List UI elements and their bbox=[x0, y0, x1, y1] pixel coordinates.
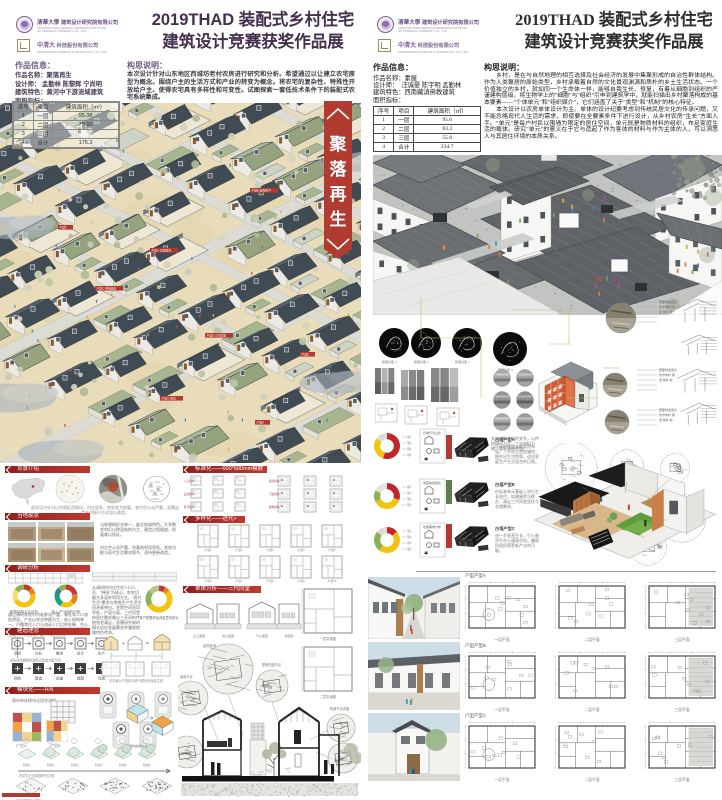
svg-text:家庭构成变化: 家庭构成变化 bbox=[423, 480, 441, 485]
svg-text:防水卷材 保: 防水卷材 保 bbox=[659, 372, 675, 377]
svg-text:项4: 项4 bbox=[407, 547, 412, 551]
svg-text:户型B·庭院生产: 户型B·庭院生产 bbox=[252, 189, 272, 193]
svg-text:户型F: 户型F bbox=[60, 226, 68, 230]
svg-text:功能需求分布: 功能需求分布 bbox=[423, 524, 441, 529]
svg-text:项4: 项4 bbox=[407, 503, 412, 507]
svg-text:日常行为占比: 日常行为占比 bbox=[423, 430, 441, 435]
svg-text:户型8: 户型8 bbox=[266, 579, 274, 583]
svg-text:需求: 需求 bbox=[56, 651, 64, 656]
svg-text:户型5: 户型5 bbox=[328, 548, 336, 552]
svg-text:户型E: 户型E bbox=[302, 353, 310, 357]
svg-text:侧立面图: 侧立面图 bbox=[222, 633, 234, 638]
svg-text:层 椽条 檩: 层 椽条 檩 bbox=[659, 377, 673, 382]
svg-text:防水卷材 保: 防水卷材 保 bbox=[659, 304, 675, 309]
svg-text:户型1: 户型1 bbox=[204, 548, 212, 552]
svg-text:项3: 项3 bbox=[407, 497, 412, 501]
svg-text:运输: 运输 bbox=[56, 676, 64, 681]
svg-text:宅平面以户型单元进行模块化组合生成: 宅平面以户型单元进行模块化组合生成 bbox=[109, 678, 164, 683]
svg-text:项2: 项2 bbox=[407, 441, 412, 445]
svg-text:户型G·民宿: 户型G·民宿 bbox=[162, 397, 176, 401]
svg-text:厨房模块: 厨房模块 bbox=[269, 479, 280, 483]
svg-text:户型C·宅前经营: 户型C·宅前经营 bbox=[97, 287, 117, 291]
svg-text:正立面图: 正立面图 bbox=[193, 633, 205, 638]
svg-text:户型3: 户型3 bbox=[266, 548, 274, 552]
svg-text:回收: 回收 bbox=[14, 676, 22, 681]
svg-text:项3: 项3 bbox=[407, 447, 412, 451]
svg-text:各户型需求及改造意向统计: 各户型需求及改造意向统计 bbox=[140, 615, 179, 620]
svg-text:剖面图: 剖面图 bbox=[284, 633, 293, 638]
svg-text:起居模块: 起居模块 bbox=[184, 492, 195, 496]
svg-text:屋面构造层次: 屋面构造层次 bbox=[659, 407, 677, 412]
svg-text:项3: 项3 bbox=[407, 541, 412, 545]
svg-text:项1: 项1 bbox=[407, 435, 412, 439]
svg-text:户型H: 户型H bbox=[257, 421, 265, 425]
svg-text:卧室模块: 卧室模块 bbox=[184, 505, 195, 509]
svg-text:装配: 装配 bbox=[77, 676, 85, 681]
svg-text:项1: 项1 bbox=[407, 485, 412, 489]
svg-text:户型7: 户型7 bbox=[235, 579, 243, 583]
svg-text:户型6: 户型6 bbox=[204, 579, 212, 583]
svg-text:项1: 项1 bbox=[407, 529, 412, 533]
svg-text:项4: 项4 bbox=[407, 453, 412, 457]
svg-text:卫浴模块: 卫浴模块 bbox=[269, 492, 280, 496]
svg-text:=: = bbox=[146, 641, 149, 647]
svg-text:楼梯模块: 楼梯模块 bbox=[269, 505, 280, 509]
svg-text:全生命周期绿色装配式建造流程示意: 全生命周期绿色装配式建造流程示意 bbox=[10, 658, 61, 663]
svg-text:户型D·三代同堂: 户型D·三代同堂 bbox=[207, 334, 227, 338]
svg-text:结构体系: 结构体系 bbox=[203, 643, 217, 648]
svg-text:防水卷材 保: 防水卷材 保 bbox=[659, 412, 675, 417]
svg-text:分析: 分析 bbox=[35, 651, 43, 656]
svg-text:户型9: 户型9 bbox=[297, 579, 305, 583]
svg-text:构造节点详图: 构造节点详图 bbox=[330, 706, 349, 711]
svg-text:层 椽条 檩: 层 椽条 檩 bbox=[659, 417, 673, 422]
svg-text:户型A·合院居住: 户型A·合院居住 bbox=[152, 249, 172, 253]
svg-text:入口模块: 入口模块 bbox=[184, 479, 195, 483]
svg-text:户型4: 户型4 bbox=[297, 548, 305, 552]
svg-text:屋面构造层次: 屋面构造层次 bbox=[659, 299, 677, 304]
svg-text:项2: 项2 bbox=[407, 491, 412, 495]
svg-text:背立面图: 背立面图 bbox=[256, 633, 268, 638]
svg-text:屋面构造节点: 屋面构造节点 bbox=[262, 662, 282, 667]
svg-text:设计: 设计 bbox=[77, 651, 85, 656]
svg-text:项2: 项2 bbox=[407, 535, 412, 539]
svg-text:户型10: 户型10 bbox=[328, 579, 337, 583]
svg-text:层 椽条 檩: 层 椽条 檩 bbox=[659, 309, 673, 314]
svg-text:屋面构造层次: 屋面构造层次 bbox=[659, 367, 677, 372]
svg-text:墙身节点: 墙身节点 bbox=[180, 674, 194, 679]
svg-text:+: + bbox=[122, 641, 125, 647]
svg-text:建造: 建造 bbox=[35, 676, 43, 681]
svg-text:户型2: 户型2 bbox=[235, 548, 243, 552]
